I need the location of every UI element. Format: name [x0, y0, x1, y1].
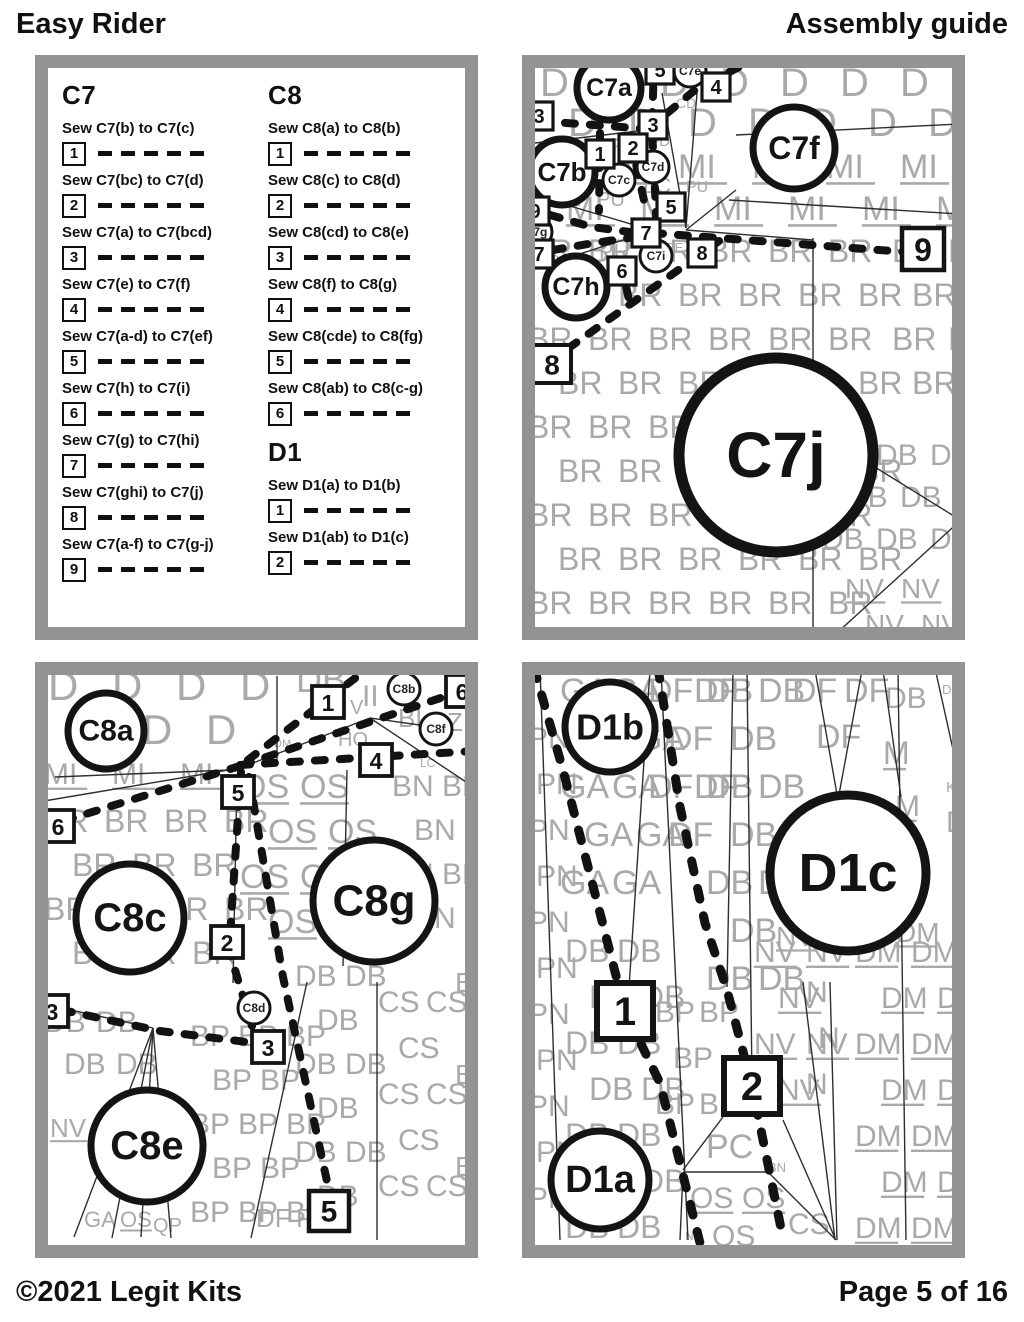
- label-text: 7: [533, 244, 544, 266]
- step-number: 1: [268, 499, 292, 523]
- instruction-column: C8Sew C8(a) to C8(b)1Sew C8(c) to C8(d)2…: [268, 78, 474, 627]
- fabric-code-letter: PN: [536, 768, 578, 801]
- fabric-code-letter: DF: [844, 672, 889, 710]
- sew-instruction: Sew C7(e) to C7(f): [62, 276, 268, 293]
- fabric-code-letter: DB: [706, 768, 753, 806]
- sew-instruction: Sew C7(b) to C7(c): [62, 120, 268, 137]
- sew-line-sample: [98, 359, 208, 364]
- label-text: 9: [914, 232, 932, 268]
- fabric-code-letter: BP: [286, 1108, 326, 1141]
- sew-line-sample: [98, 203, 208, 208]
- doc-title: Easy Rider: [16, 8, 166, 41]
- fabric-code-letter: OS: [300, 768, 349, 806]
- label-text: 4: [370, 748, 383, 774]
- copyright-text: ©2021 Legit Kits: [16, 1276, 242, 1309]
- label-text: 6: [616, 261, 627, 283]
- fabric-code-letter: BP: [212, 1152, 252, 1185]
- label-text: 1: [322, 690, 335, 716]
- step-number: 6: [268, 402, 292, 426]
- step-number: 1: [62, 142, 86, 166]
- fabric-code-letter: MI: [900, 148, 938, 186]
- fabric-code-letter: NV: [901, 573, 940, 604]
- fabric-code-letter: DB: [885, 682, 927, 715]
- sew-instruction: Sew C7(ghi) to C7(j): [62, 484, 268, 501]
- step-number: 3: [62, 246, 86, 270]
- step-number: 4: [62, 298, 86, 322]
- label-text: C8d: [243, 1001, 266, 1015]
- step-number: 9: [62, 558, 86, 582]
- fabric-code-letter: OS: [120, 1207, 152, 1232]
- label-text: C7a: [586, 74, 633, 102]
- fabric-code-letter: BP: [655, 996, 695, 1029]
- sew-line-sample: [98, 307, 208, 312]
- fabric-code-letter: DF: [668, 816, 713, 854]
- sew-instruction: Sew C7(g) to C7(hi): [62, 432, 268, 449]
- sew-step-row: 1: [268, 142, 474, 165]
- fabric-code-letter: D: [868, 101, 897, 145]
- sew-step-row: 6: [62, 402, 268, 425]
- sew-instruction: Sew C8(cd) to C8(e): [268, 224, 474, 241]
- sew-instruction: Sew D1(ab) to D1(c): [268, 529, 474, 546]
- sew-instruction: Sew D1(a) to D1(b): [268, 477, 474, 494]
- instruction-column: C7Sew C7(b) to C7(c)1Sew C7(bc) to C7(d)…: [62, 78, 268, 627]
- sew-line-sample: [304, 411, 414, 416]
- fabric-code-letter: OS: [268, 813, 317, 851]
- fabric-code-letter: BR: [618, 365, 662, 401]
- fabric-code-letter: BR: [708, 585, 752, 621]
- label-text: C8b: [393, 682, 416, 696]
- sew-step-row: 3: [62, 246, 268, 269]
- sew-line-sample: [98, 151, 208, 156]
- label-text: 3: [262, 1035, 275, 1061]
- fabric-code-letter: II: [362, 680, 379, 713]
- sew-instruction: Sew C8(ab) to C8(c-g): [268, 380, 474, 397]
- fabric-code-letter: BR: [618, 541, 662, 577]
- fabric-code-letter: BR: [798, 277, 842, 313]
- step-number: 2: [268, 194, 292, 218]
- diagram-d1-panel: GAGAGAGAGAGAGAGAGAGADFDFDFDFDFDFDBDBDBDB…: [522, 662, 965, 1258]
- fabric-code-letter: BR: [912, 365, 956, 401]
- step-number: 1: [268, 142, 292, 166]
- label-text: C7i: [647, 249, 666, 263]
- fabric-code-letter: BR: [738, 277, 782, 313]
- fabric-code-letter: CS: [378, 1170, 420, 1203]
- step-number: 8: [62, 506, 86, 530]
- sew-step-row: 7: [62, 454, 268, 477]
- fabric-code-letter: MI: [714, 190, 752, 228]
- label-text: C7c: [608, 173, 630, 187]
- fabric-code-letter: DB: [617, 933, 661, 969]
- fabric-code-letter: BP: [238, 1108, 278, 1141]
- label-text: C8e: [110, 1124, 183, 1168]
- label-text: 5: [665, 197, 676, 219]
- fabric-code-letter: BR: [828, 321, 872, 357]
- step-number: 5: [62, 350, 86, 374]
- section-heading: C8: [268, 80, 474, 111]
- fabric-code-letter: CS: [378, 1078, 420, 1111]
- fabric-code-letter: CS: [398, 1124, 440, 1157]
- label-text: 2: [627, 138, 638, 160]
- fabric-code-letter: BR: [558, 541, 602, 577]
- fabric-code-letter: DB: [295, 960, 337, 993]
- diagram-d1-svg: GAGAGAGAGAGAGAGAGAGADFDFDFDFDFDFDBDBDBDB…: [522, 662, 965, 1258]
- fabric-code-letter: BR: [558, 453, 602, 489]
- diagram-c8-svg: DDDDDDDMIMIMIOSOSOSOSOSOSOSOSBRBRBRBRBRB…: [35, 662, 478, 1258]
- sew-line-sample: [304, 151, 414, 156]
- fabric-code-letter: BN: [392, 770, 434, 803]
- step-number: 2: [62, 194, 86, 218]
- label-text: C8g: [332, 877, 415, 926]
- sew-line-sample: [304, 508, 414, 513]
- sew-line-sample: [304, 359, 414, 364]
- sew-line-sample: [304, 560, 414, 565]
- fabric-code-letter: MI: [44, 758, 77, 791]
- sew-step-row: 2: [62, 194, 268, 217]
- step-number: 6: [62, 402, 86, 426]
- label-text: 1: [614, 990, 636, 1034]
- fabric-code-letter: D: [206, 706, 236, 753]
- fabric-code-letter: DM: [855, 1212, 902, 1245]
- sew-step-row: 4: [268, 298, 474, 321]
- sew-step-row: 1: [268, 499, 474, 522]
- sew-instruction: Sew C7(a-d) to C7(ef): [62, 328, 268, 345]
- sew-instruction: Sew C7(bc) to C7(d): [62, 172, 268, 189]
- step-number: 3: [268, 246, 292, 270]
- fabric-code-letter: PC: [706, 1128, 753, 1166]
- label-text: 1: [594, 144, 605, 166]
- section-heading: C7: [62, 80, 268, 111]
- label-text: D1b: [576, 707, 644, 748]
- label-text: D1a: [565, 1159, 636, 1201]
- sew-instruction: Sew C8(cde) to C8(fg): [268, 328, 474, 345]
- sew-step-row: 1: [62, 142, 268, 165]
- sew-instruction: Sew C7(h) to C7(i): [62, 380, 268, 397]
- fabric-code-letter: N: [818, 1022, 840, 1055]
- sew-instruction: Sew C8(c) to C8(d): [268, 172, 474, 189]
- fabric-code-letter: DB: [345, 1136, 387, 1169]
- instructions-panel: C7Sew C7(b) to C7(c)1Sew C7(bc) to C7(d)…: [35, 55, 478, 640]
- fabric-code-letter: N: [806, 976, 828, 1009]
- label-text: 3: [533, 106, 544, 128]
- fabric-code-letter: BR: [588, 585, 632, 621]
- fabric-code-letter: DM: [855, 1028, 902, 1061]
- fabric-code-letter: DB: [876, 523, 918, 556]
- step-number: 5: [268, 350, 292, 374]
- fabric-code-letter: CS: [398, 1032, 440, 1065]
- label-text: 2: [221, 930, 234, 956]
- fabric-code-letter: BN: [414, 814, 456, 847]
- fabric-code-letter: BR: [164, 803, 208, 839]
- sew-step-row: 4: [62, 298, 268, 321]
- fabric-code-letter: MI: [788, 190, 826, 228]
- fabric-code-letter: DM: [911, 1120, 958, 1153]
- fabric-code-letter: DB: [64, 1048, 106, 1081]
- sew-step-row: 8: [62, 506, 268, 529]
- label-text: 4: [710, 77, 722, 99]
- sew-step-row: 6: [268, 402, 474, 425]
- fabric-code-letter: BP: [190, 1196, 230, 1229]
- label-text: 8: [696, 243, 707, 265]
- fabric-code-letter: DB: [589, 1071, 633, 1107]
- sew-instruction: Sew C8(a) to C8(b): [268, 120, 474, 137]
- fabric-code-letter: BR: [648, 585, 692, 621]
- fabric-code-letter: BR: [588, 497, 632, 533]
- sew-instruction: Sew C7(a-f) to C7(g-j): [62, 536, 268, 553]
- sew-step-row: 9: [62, 558, 268, 581]
- label-text: 5: [321, 1196, 338, 1229]
- doc-subtitle: Assembly guide: [786, 8, 1008, 41]
- sew-step-row: 3: [268, 246, 474, 269]
- sew-instruction: Sew C8(f) to C8(g): [268, 276, 474, 293]
- label-text: C8f: [426, 722, 446, 736]
- fabric-code-letter: DM: [855, 1120, 902, 1153]
- fabric-code-letter: NV: [845, 573, 884, 604]
- sew-line-sample: [304, 203, 414, 208]
- label-text: 2: [741, 1065, 763, 1109]
- label-text: D1c: [798, 843, 897, 903]
- label-text: 7: [640, 223, 651, 245]
- fabric-code-letter: BR: [588, 409, 632, 445]
- sew-line-sample: [98, 567, 208, 572]
- step-number: 4: [268, 298, 292, 322]
- label-text: C8c: [93, 896, 166, 940]
- label-text: C7b: [537, 157, 586, 187]
- fabric-code-letter: PN: [536, 860, 578, 893]
- fabric-code-letter: DF: [648, 672, 693, 710]
- sew-step-row: 5: [268, 350, 474, 373]
- fabric-code-letter: DB: [706, 672, 753, 710]
- fabric-code-letter: DM: [881, 1166, 928, 1199]
- fabric-code-letter: NV: [50, 1113, 87, 1143]
- fabric-code-letter: OS: [690, 1182, 733, 1215]
- label-text: C8a: [78, 715, 133, 748]
- fabric-code-letter: CS: [378, 986, 420, 1019]
- label-text: C7j: [726, 419, 826, 491]
- fabric-code-letter: QP: [153, 1215, 182, 1237]
- label-text: 8: [544, 350, 560, 381]
- sew-instruction: Sew C7(a) to C7(bcd): [62, 224, 268, 241]
- fabric-code-letter: BR: [708, 321, 752, 357]
- fabric-code-letter: DB: [345, 1048, 387, 1081]
- label-text: C7f: [768, 130, 820, 166]
- sew-step-row: 5: [62, 350, 268, 373]
- fabric-code-letter: DB: [758, 768, 805, 806]
- fabric-code-letter: BR: [912, 277, 956, 313]
- fabric-code-letter: DF: [816, 718, 861, 756]
- fabric-code-letter: BR: [892, 321, 936, 357]
- fabric-code-letter: DM: [911, 1212, 958, 1245]
- diagram-c8-panel: DDDDDDDMIMIMIOSOSOSOSOSOSOSOSBRBRBRBRBRB…: [35, 662, 478, 1258]
- sew-line-sample: [98, 411, 208, 416]
- section-heading: D1: [268, 437, 474, 468]
- fabric-code-letter: BR: [678, 541, 722, 577]
- sew-line-sample: [98, 255, 208, 260]
- label-text: C7h: [552, 273, 599, 301]
- fabric-code-letter: DM: [881, 982, 928, 1015]
- sew-step-row: 2: [268, 551, 474, 574]
- fabric-code-letter: BR: [618, 453, 662, 489]
- diagram-c7-svg: DDDDDDDDDDDDDDMIMIMIMIMIMIMIMIMIMIMIMIBR…: [522, 55, 965, 640]
- fabric-code-letter: BP: [260, 1064, 300, 1097]
- step-number: 7: [62, 454, 86, 478]
- fabric-code-letter: V: [350, 697, 364, 719]
- fabric-code-letter: BR: [768, 585, 812, 621]
- fabric-code-letter: BP: [212, 1064, 252, 1097]
- fabric-code-letter: DF: [256, 1203, 291, 1233]
- fabric-code-letter: BR: [768, 321, 812, 357]
- label-text: 5: [232, 780, 245, 806]
- label-text: 6: [52, 814, 65, 840]
- sew-line-sample: [98, 515, 208, 520]
- step-number: 2: [268, 551, 292, 575]
- fabric-code-letter: BR: [192, 847, 236, 883]
- sew-step-row: 2: [268, 194, 474, 217]
- sew-line-sample: [304, 255, 414, 260]
- fabric-code-letter: GA: [84, 1207, 116, 1232]
- fabric-code-letter: BR: [858, 277, 902, 313]
- fabric-code-letter: DB: [730, 720, 777, 758]
- fabric-code-letter: DF: [648, 768, 693, 806]
- fabric-code-letter: DB: [876, 439, 918, 472]
- page-number: Page 5 of 16: [839, 1276, 1008, 1309]
- fabric-code-letter: DF: [792, 672, 837, 710]
- diagram-c7-panel: DDDDDDDDDDDDDDMIMIMIMIMIMIMIMIMIMIMIMIBR…: [522, 55, 965, 640]
- fabric-code-letter: BR: [858, 365, 902, 401]
- fabric-code-letter: BR: [648, 321, 692, 357]
- sew-line-sample: [98, 463, 208, 468]
- fabric-code-letter: DM: [911, 1028, 958, 1061]
- fabric-code-letter: GA: [584, 816, 633, 854]
- fabric-code-letter: BR: [678, 277, 722, 313]
- label-text: 3: [647, 115, 658, 137]
- sew-line-sample: [304, 307, 414, 312]
